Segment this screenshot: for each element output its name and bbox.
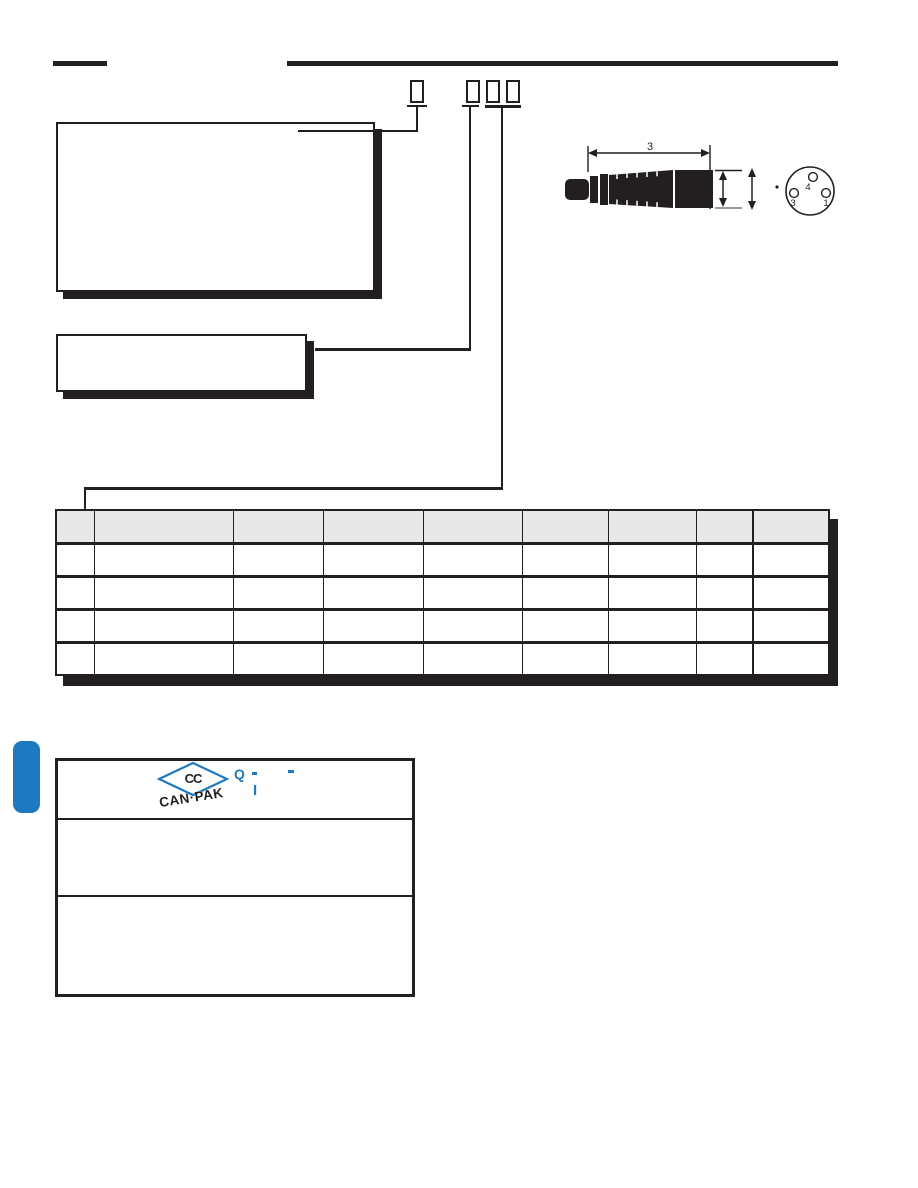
company-box-middle-row — [58, 820, 412, 897]
callout-line-3-vertical — [501, 108, 503, 489]
ordering-code-digit-box-3 — [486, 80, 500, 103]
table-cell — [57, 611, 94, 641]
table-header-cell — [323, 511, 423, 542]
company-box-bottom-row — [58, 897, 412, 994]
diameter-dimension-outer — [748, 168, 756, 210]
table-row — [57, 542, 828, 575]
table-header-cell — [233, 511, 323, 542]
tagline-dash-1 — [252, 772, 257, 775]
table-header-row — [57, 511, 828, 542]
digit-box-3-4-underline — [485, 105, 521, 108]
table-header-cell — [696, 511, 752, 542]
pin-label-3: 3 — [790, 198, 795, 209]
tagline-i: I — [253, 783, 257, 798]
pin-circle-right — [822, 189, 831, 198]
table-cell — [608, 644, 696, 674]
table-cell — [57, 578, 94, 608]
table-cell — [233, 545, 323, 575]
callout-line-3-drop — [84, 487, 86, 509]
table-cell — [608, 545, 696, 575]
header-rule — [287, 61, 838, 66]
ordering-code-digit-box-1 — [410, 80, 424, 103]
table-cell — [57, 545, 94, 575]
stray-dot — [775, 185, 778, 188]
side-tab — [13, 741, 40, 813]
tagline-q: Q — [234, 767, 245, 781]
table-header-cell — [752, 511, 819, 542]
callout-line-2-vertical — [469, 107, 471, 350]
ordering-code-digit-box-4 — [506, 80, 520, 103]
table-row — [57, 575, 828, 608]
company-box-logo-row: CC CAN·PAK Q I — [58, 761, 412, 820]
pin-circle-top — [809, 173, 818, 182]
length-dimension-label: 3 — [647, 141, 653, 153]
table-cell — [323, 578, 423, 608]
pin-label-4: 4 — [805, 182, 810, 193]
table-header-cell — [423, 511, 522, 542]
header-accent-bar — [53, 61, 107, 66]
table-cell — [752, 611, 819, 641]
table-cell — [696, 545, 752, 575]
table-cell — [522, 578, 608, 608]
table-cell — [522, 644, 608, 674]
callout-line-1-vertical — [416, 107, 418, 132]
table-cell — [233, 578, 323, 608]
table-cell — [323, 611, 423, 641]
table-cell — [233, 644, 323, 674]
callout-line-2-horizontal — [315, 348, 471, 351]
pin-circle-left — [790, 189, 799, 198]
pin-label-1: 1 — [823, 198, 828, 209]
table-cell — [94, 545, 233, 575]
table-cell — [323, 644, 423, 674]
tagline-dash-2 — [288, 770, 294, 773]
logo-monogram: CC — [185, 771, 203, 786]
table-row — [57, 608, 828, 641]
connector-face-view: 4 3 1 — [780, 162, 842, 220]
table-cell — [94, 644, 233, 674]
table-header-cell — [94, 511, 233, 542]
table-cell — [423, 578, 522, 608]
company-info-box: CC CAN·PAK Q I — [55, 758, 415, 997]
product-description-box — [56, 122, 375, 292]
ordering-code-digit-box-2 — [466, 80, 480, 103]
table-cell — [423, 644, 522, 674]
canpak-logo: CC CAN·PAK — [157, 761, 229, 809]
table-cell — [696, 644, 752, 674]
table-cell — [752, 545, 819, 575]
table-cell — [323, 545, 423, 575]
table-cell — [752, 578, 819, 608]
table-cell — [57, 644, 94, 674]
callout-line-3-horizontal — [84, 487, 503, 490]
table-cell — [423, 611, 522, 641]
table-cell — [233, 611, 323, 641]
table-cell — [522, 545, 608, 575]
table-cell — [94, 611, 233, 641]
diameter-dimension-inner — [715, 171, 742, 209]
table-cell — [752, 644, 819, 674]
table-row — [57, 641, 828, 674]
table-cell — [522, 611, 608, 641]
parts-table — [55, 509, 830, 676]
table-cell — [608, 611, 696, 641]
option-description-box — [56, 334, 307, 392]
table-header-cell — [608, 511, 696, 542]
connector-body — [565, 170, 713, 208]
table-cell — [696, 578, 752, 608]
table-cell — [94, 578, 233, 608]
table-cell — [423, 545, 522, 575]
callout-line-1-horizontal — [298, 130, 418, 132]
table-cell — [696, 611, 752, 641]
table-cell — [608, 578, 696, 608]
connector-side-view: 3 — [555, 138, 790, 218]
table-header-cell — [522, 511, 608, 542]
table-header-cell — [57, 511, 94, 542]
